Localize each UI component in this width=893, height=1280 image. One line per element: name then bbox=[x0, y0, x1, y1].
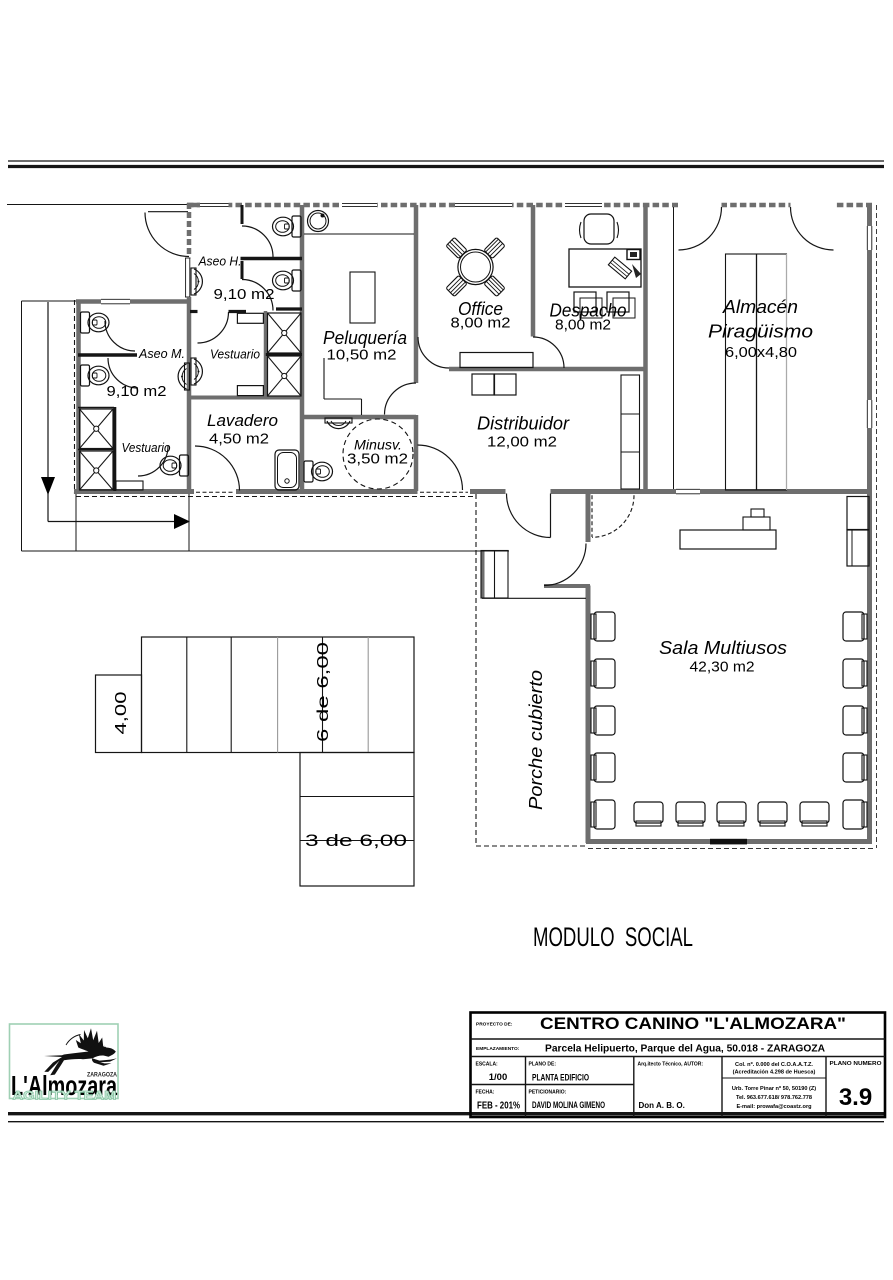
svg-text:ESCALA:: ESCALA: bbox=[476, 1062, 499, 1068]
svg-text:PETICIONARIO:: PETICIONARIO: bbox=[529, 1090, 567, 1096]
svg-text:Vestuario: Vestuario bbox=[122, 441, 171, 455]
svg-text:Col. nº. 0.000 del C.O.A.A.T.Z: Col. nº. 0.000 del C.O.A.A.T.Z. bbox=[735, 1062, 813, 1068]
svg-text:Almacén: Almacén bbox=[722, 297, 798, 317]
svg-text:PLANO DE:: PLANO DE: bbox=[529, 1062, 557, 1068]
svg-text:PLANTA EDIFICIO: PLANTA EDIFICIO bbox=[532, 1073, 589, 1083]
svg-text:Aseo M.: Aseo M. bbox=[138, 347, 185, 361]
svg-text:3 de 6,00: 3 de 6,00 bbox=[305, 831, 407, 850]
svg-text:CENTRO CANINO "L'ALMOZARA": CENTRO CANINO "L'ALMOZARA" bbox=[540, 1015, 846, 1033]
svg-text:FEB - 201%: FEB - 201% bbox=[477, 1100, 520, 1112]
svg-text:Vestuario: Vestuario bbox=[210, 348, 260, 362]
svg-text:12,00 m2: 12,00 m2 bbox=[487, 434, 557, 451]
svg-text:(Acreditación 4.298 de Huesca): (Acreditación 4.298 de Huesca) bbox=[733, 1070, 816, 1076]
svg-text:6,00x4,80: 6,00x4,80 bbox=[725, 345, 797, 361]
svg-text:Aseo H.: Aseo H. bbox=[198, 255, 242, 269]
svg-text:Tel. 963.677.618/ 978.762.778: Tel. 963.677.618/ 978.762.778 bbox=[736, 1095, 812, 1101]
svg-text:3,50 m2: 3,50 m2 bbox=[347, 452, 408, 468]
svg-text:Sala Multiusos: Sala Multiusos bbox=[659, 638, 787, 658]
svg-text:Arq.itecto Técnico, AUTOR:: Arq.itecto Técnico, AUTOR: bbox=[638, 1062, 704, 1068]
svg-text:Lavadero: Lavadero bbox=[207, 412, 278, 430]
svg-text:MODULO SOCIAL: MODULO SOCIAL bbox=[533, 922, 693, 952]
svg-text:9,10 m2: 9,10 m2 bbox=[214, 287, 275, 303]
svg-text:Minusv.: Minusv. bbox=[354, 438, 402, 453]
svg-text:E-mail: prowafa@coastz.org: E-mail: prowafa@coastz.org bbox=[736, 1104, 812, 1110]
svg-text:Piragüismo: Piragüismo bbox=[708, 322, 813, 342]
svg-text:Distribuidor: Distribuidor bbox=[477, 414, 570, 434]
svg-text:Urb. Torre Pinar nº 50, 50190: Urb. Torre Pinar nº 50, 50190 (Z) bbox=[732, 1086, 816, 1092]
svg-text:Peluquería: Peluquería bbox=[323, 328, 407, 348]
svg-text:DAVID MOLINA GIMENO: DAVID MOLINA GIMENO bbox=[532, 1100, 605, 1110]
svg-text:42,30 m2: 42,30 m2 bbox=[690, 659, 755, 676]
svg-text:10,50 m2: 10,50 m2 bbox=[327, 347, 397, 364]
svg-text:FECHA:: FECHA: bbox=[476, 1090, 495, 1096]
svg-text:4,50 m2: 4,50 m2 bbox=[209, 432, 269, 448]
svg-text:Don A. B. O.: Don A. B. O. bbox=[639, 1101, 685, 1110]
svg-text:Porche cubierto: Porche cubierto bbox=[526, 670, 546, 810]
svg-text:8,00 m2: 8,00 m2 bbox=[451, 316, 511, 332]
svg-text:8,00 m2: 8,00 m2 bbox=[555, 318, 611, 334]
svg-text:1/00: 1/00 bbox=[489, 1072, 508, 1083]
svg-text:EMPLAZAMIENTO:: EMPLAZAMIENTO: bbox=[476, 1046, 520, 1052]
svg-text:PROYECTO DE:: PROYECTO DE: bbox=[476, 1022, 513, 1028]
svg-text:6 de 6,00: 6 de 6,00 bbox=[315, 642, 332, 742]
svg-text:3.9: 3.9 bbox=[839, 1084, 872, 1111]
svg-text:9,10 m2: 9,10 m2 bbox=[107, 384, 167, 400]
svg-text:Parcela Helipuerto, Parque del: Parcela Helipuerto, Parque del Agua, 50.… bbox=[545, 1044, 825, 1055]
svg-text:PLANO NUMERO: PLANO NUMERO bbox=[830, 1061, 882, 1067]
svg-text:4,00: 4,00 bbox=[113, 691, 130, 734]
svg-text:AGILITY TEAM: AGILITY TEAM bbox=[13, 1089, 117, 1103]
